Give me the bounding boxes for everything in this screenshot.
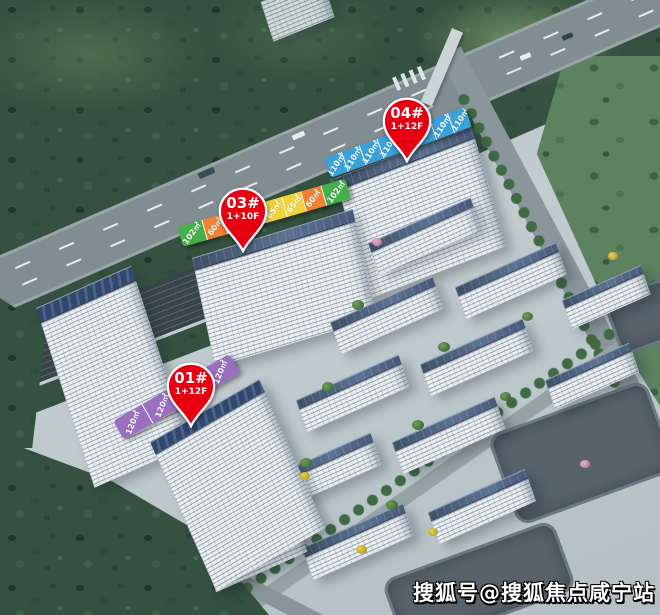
pin-floor-count: 1+12F xyxy=(380,122,434,132)
location-pin-01: 01# 1+12F xyxy=(164,362,218,428)
pin-floor-count: 1+10F xyxy=(216,212,270,222)
tree-icon xyxy=(522,312,533,321)
pin-building-number: 03# xyxy=(216,195,270,211)
yellow-tree-icon xyxy=(428,528,438,536)
tree-icon xyxy=(300,458,312,468)
yellow-tree-icon xyxy=(608,252,618,260)
tree-icon xyxy=(412,420,424,430)
watermark: 搜狐号@搜狐焦点咸宁站 xyxy=(413,577,655,607)
pin-floor-count: 1+12F xyxy=(164,387,218,397)
yellow-tree-icon xyxy=(356,545,367,554)
tree-icon xyxy=(438,342,450,352)
pink-tree-icon xyxy=(580,460,590,468)
lowrise-building xyxy=(296,354,409,432)
tree-icon xyxy=(322,382,334,392)
location-pin-04: 04# 1+12F xyxy=(380,97,434,163)
pin-building-number: 01# xyxy=(164,370,218,386)
tree-icon xyxy=(386,500,398,510)
tree-icon xyxy=(352,300,364,310)
lowrise-building xyxy=(420,318,533,396)
yellow-tree-icon xyxy=(300,472,310,480)
pink-tree-icon xyxy=(372,238,382,246)
tree-icon xyxy=(500,392,511,401)
pin-building-number: 04# xyxy=(380,105,434,121)
location-pin-03: 03# 1+10F xyxy=(216,187,270,253)
aerial-rendering: 120㎡120㎡120㎡120㎡ 102㎡60㎡65㎡65㎡65㎡65㎡60㎡1… xyxy=(0,0,660,615)
